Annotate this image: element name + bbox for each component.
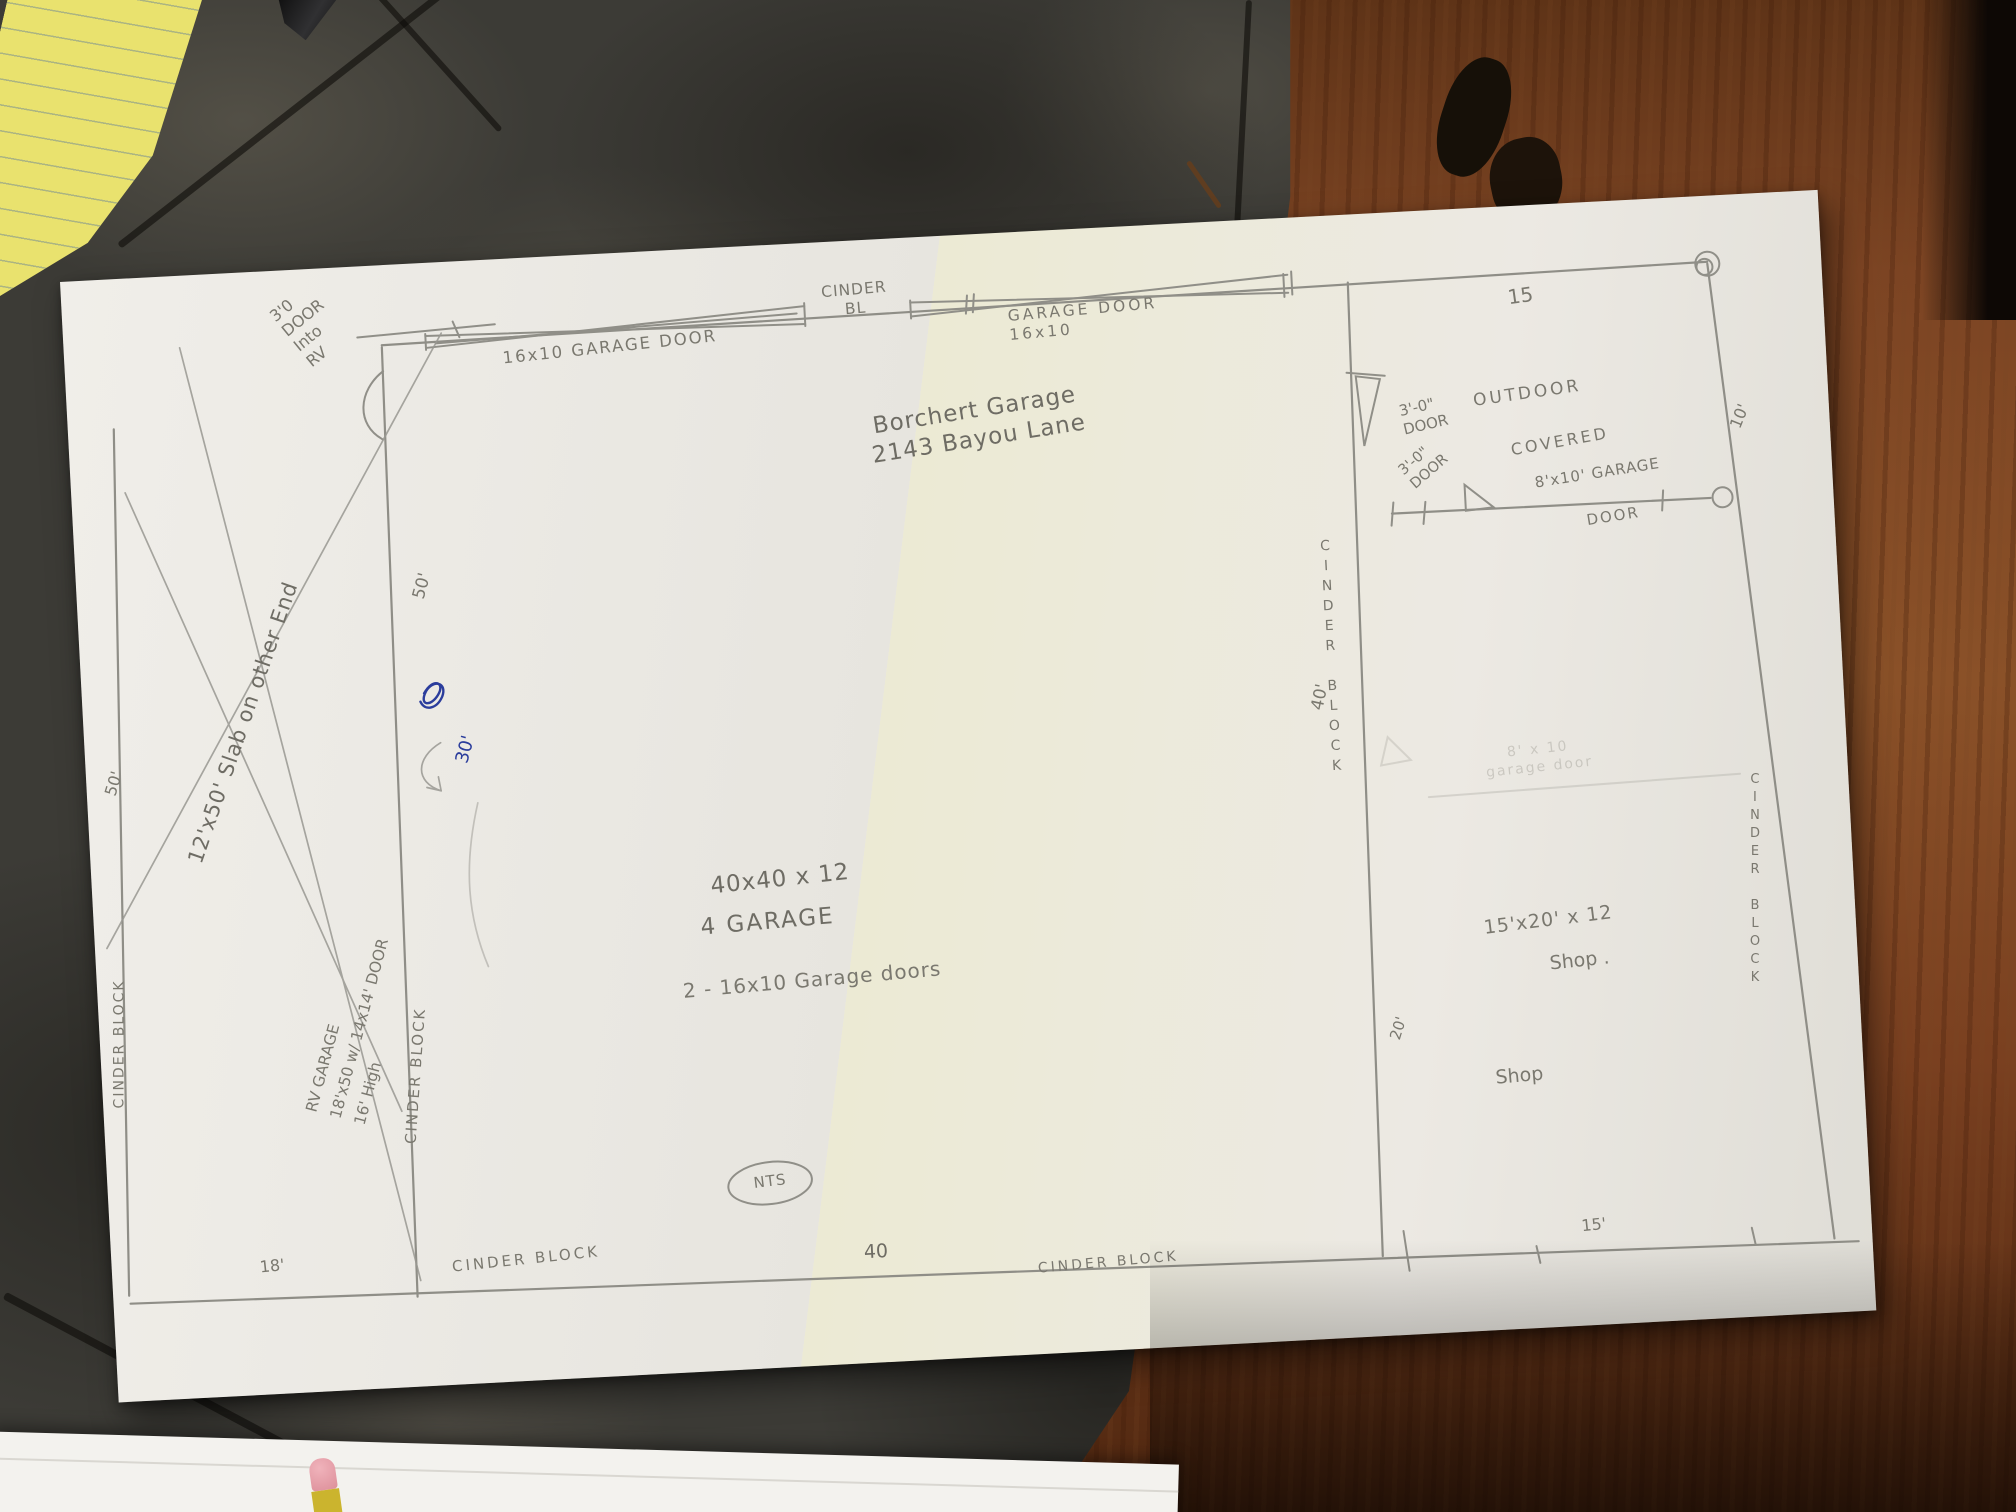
grout-line [1234,0,1252,230]
photo-scene: Borchert Garage 2143 Bayou Lane 16x10 GA… [0,0,2016,1512]
cinder-block-left-outer: CINDER BLOCK [111,979,129,1108]
paper-stack-edge [0,1457,1178,1492]
grout-line [297,0,502,132]
pencil-body [311,1488,343,1512]
table-bottom-shadow [1150,1240,2016,1512]
cinder-block-label-top: CINDER BL [820,278,889,322]
dimension-40-bottom: 40 [863,1240,888,1265]
label-shop-2: Shop [1495,1063,1545,1091]
cinder-block-right-vertical: CINDER BLOCK [1746,772,1762,1087]
dimension-18: 18' [259,1255,286,1277]
sketch-paper: Borchert Garage 2143 Bayou Lane 16x10 GA… [60,190,1876,1403]
dimension-15-top: 15 [1506,282,1535,310]
eraser-tip [308,1457,338,1492]
table-edge-shadow [1922,0,2016,320]
dimension-15-bottom: 15' [1580,1214,1607,1236]
